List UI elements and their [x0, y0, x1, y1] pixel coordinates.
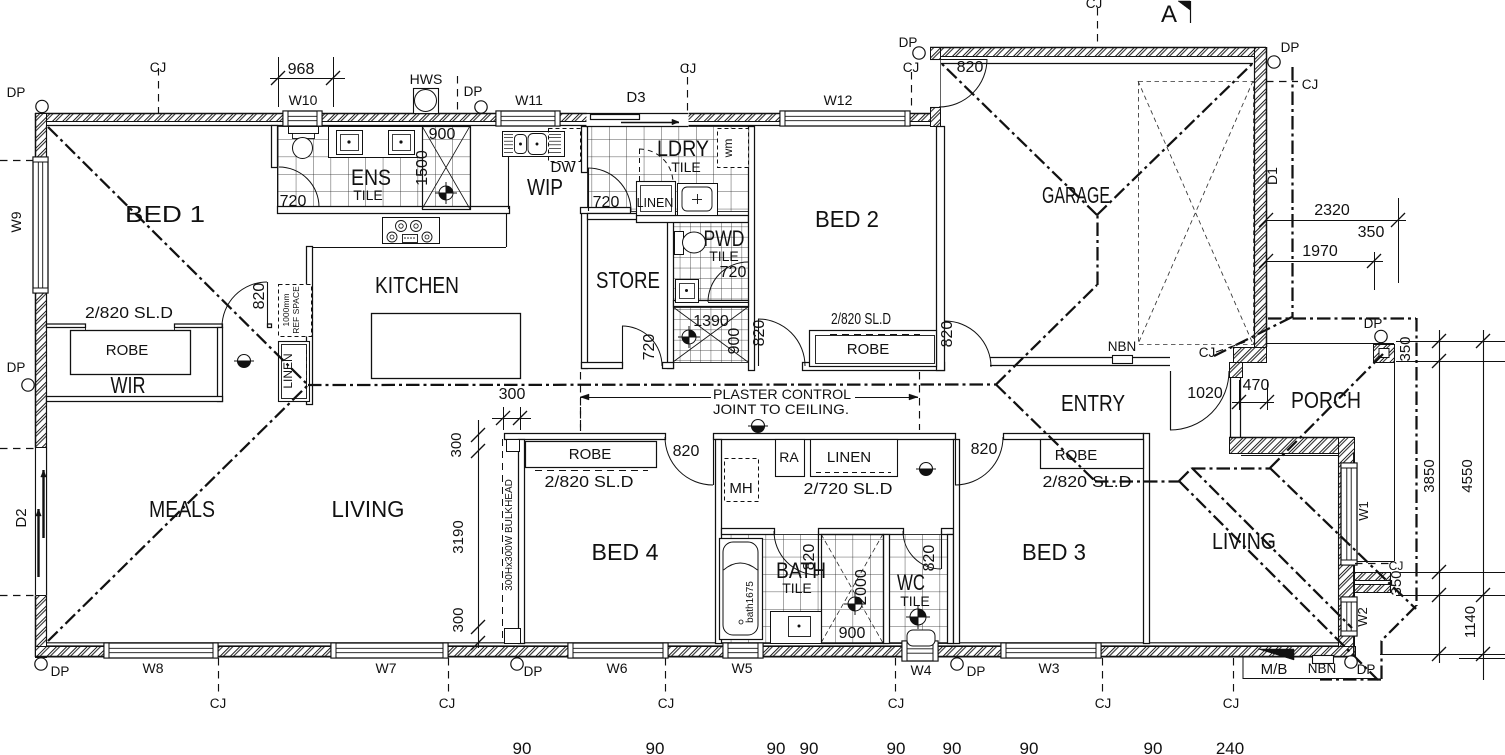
svg-text:300Hx300W BULKHEAD: 300Hx300W BULKHEAD — [504, 479, 515, 591]
svg-text:ROBE: ROBE — [1055, 447, 1098, 464]
svg-text:CJ: CJ — [1095, 696, 1112, 711]
svg-text:WIR: WIR — [111, 372, 146, 398]
svg-text:ROBE: ROBE — [569, 446, 612, 463]
svg-text:720: 720 — [593, 194, 620, 211]
svg-text:LINEN: LINEN — [637, 196, 674, 210]
svg-text:2/820 SL.D: 2/820 SL.D — [831, 311, 891, 328]
svg-text:2/720 SL.D: 2/720 SL.D — [804, 481, 893, 498]
svg-text:90: 90 — [513, 739, 532, 755]
svg-text:350: 350 — [1388, 570, 1405, 595]
svg-text:DP: DP — [464, 84, 483, 99]
svg-text:MEALS: MEALS — [149, 496, 215, 522]
svg-text:470: 470 — [1243, 377, 1270, 394]
svg-text:D2: D2 — [13, 508, 30, 527]
svg-text:DP: DP — [899, 35, 918, 50]
svg-text:W1: W1 — [1356, 501, 1371, 521]
svg-text:ENTRY: ENTRY — [1061, 390, 1125, 416]
svg-text:2/820 SL.D: 2/820 SL.D — [1043, 474, 1132, 491]
svg-text:90: 90 — [1144, 739, 1163, 755]
svg-text:CJ: CJ — [210, 696, 227, 711]
svg-text:M/B: M/B — [1261, 661, 1288, 678]
svg-text:WC: WC — [897, 570, 925, 595]
svg-text:STORE: STORE — [596, 267, 660, 293]
svg-text:90: 90 — [800, 739, 819, 755]
svg-text:BED 2: BED 2 — [815, 206, 879, 232]
svg-text:NBN: NBN — [1308, 661, 1337, 676]
svg-text:CJ: CJ — [1199, 345, 1216, 360]
svg-text:KITCHEN: KITCHEN — [375, 272, 459, 298]
svg-text:HWS: HWS — [410, 71, 443, 87]
svg-text:DP: DP — [967, 664, 986, 679]
svg-text:CJ: CJ — [903, 60, 920, 75]
svg-text:LIVING: LIVING — [1212, 528, 1276, 554]
svg-text:90: 90 — [943, 739, 962, 755]
svg-text:W2: W2 — [1355, 607, 1370, 627]
svg-text:240: 240 — [1216, 739, 1244, 755]
svg-text:820: 820 — [251, 283, 268, 310]
svg-text:2000: 2000 — [853, 569, 870, 605]
svg-text:PLASTER CONTROL: PLASTER CONTROL — [713, 386, 851, 402]
svg-text:NBN: NBN — [1108, 339, 1137, 354]
svg-text:900: 900 — [726, 328, 743, 355]
svg-text:820: 820 — [801, 544, 818, 571]
svg-text:CJ: CJ — [1223, 696, 1240, 711]
svg-text:TILE: TILE — [671, 159, 701, 175]
svg-text:900: 900 — [429, 126, 456, 143]
svg-text:1000mm: 1000mm — [281, 293, 291, 326]
svg-text:DP: DP — [7, 85, 26, 100]
svg-text:820: 820 — [673, 443, 700, 460]
svg-text:BED 1: BED 1 — [125, 201, 205, 227]
svg-text:REF SPACE: REF SPACE — [291, 286, 301, 334]
svg-text:900: 900 — [839, 625, 866, 642]
svg-text:TILE: TILE — [900, 593, 930, 609]
svg-text:2320: 2320 — [1314, 202, 1350, 219]
svg-text:CJ: CJ — [150, 60, 167, 75]
svg-text:DP: DP — [1281, 40, 1300, 55]
svg-text:720: 720 — [720, 264, 747, 281]
svg-text:W4: W4 — [911, 662, 932, 678]
svg-text:W11: W11 — [515, 92, 543, 108]
svg-text:350: 350 — [1397, 336, 1414, 361]
svg-text:W7: W7 — [376, 660, 397, 676]
svg-text:300: 300 — [448, 432, 465, 457]
svg-text:TILE: TILE — [782, 580, 812, 596]
svg-text:DP: DP — [1357, 662, 1376, 677]
svg-text:3190: 3190 — [450, 520, 467, 553]
svg-text:W12: W12 — [824, 92, 853, 108]
svg-text:CJ: CJ — [658, 696, 675, 711]
svg-text:W3: W3 — [1039, 660, 1060, 676]
svg-text:JOINT TO CEILING.: JOINT TO CEILING. — [713, 401, 849, 417]
svg-text:2/820 SL.D: 2/820 SL.D — [85, 305, 173, 322]
svg-text:D1: D1 — [1264, 167, 1280, 185]
svg-text:WIP: WIP — [527, 174, 563, 200]
svg-text:90: 90 — [646, 739, 665, 755]
svg-text:LIVING: LIVING — [332, 496, 405, 522]
svg-text:820: 820 — [971, 441, 998, 458]
svg-text:90: 90 — [887, 739, 906, 755]
svg-text:DP: DP — [7, 360, 26, 375]
svg-text:820: 820 — [751, 320, 768, 347]
svg-text:DP: DP — [51, 664, 70, 679]
svg-text:3850: 3850 — [1421, 459, 1438, 492]
svg-text:CJ: CJ — [1086, 0, 1103, 11]
svg-text:1390: 1390 — [693, 313, 729, 330]
svg-text:LINEN: LINEN — [827, 449, 871, 466]
svg-text:4550: 4550 — [1459, 459, 1476, 492]
svg-text:CJ: CJ — [439, 696, 456, 711]
svg-text:ROBE: ROBE — [106, 342, 149, 359]
svg-text:300: 300 — [499, 386, 526, 403]
svg-text:LINEN: LINEN — [281, 353, 295, 388]
svg-text:W8: W8 — [143, 660, 164, 676]
svg-text:W10: W10 — [289, 92, 318, 108]
svg-text:LDRY: LDRY — [657, 136, 709, 161]
svg-text:W5: W5 — [732, 660, 753, 676]
svg-text:1970: 1970 — [1302, 243, 1338, 260]
svg-text:W6: W6 — [607, 660, 628, 676]
svg-text:1140: 1140 — [1462, 606, 1479, 638]
svg-text:90: 90 — [1020, 739, 1039, 755]
svg-text:90: 90 — [767, 739, 786, 755]
svg-text:2/820 SL.D: 2/820 SL.D — [545, 474, 634, 491]
svg-text:CJ: CJ — [680, 61, 697, 76]
svg-text:820: 820 — [921, 545, 938, 572]
svg-text:D3: D3 — [626, 89, 645, 106]
svg-text:BED 4: BED 4 — [592, 539, 659, 565]
svg-text:RA: RA — [779, 449, 799, 465]
svg-text:720: 720 — [641, 334, 658, 361]
svg-text:TILE: TILE — [709, 248, 739, 264]
svg-text:1500: 1500 — [414, 150, 431, 186]
svg-text:DP: DP — [1364, 316, 1383, 331]
svg-text:720: 720 — [280, 193, 307, 210]
svg-text:wm: wm — [721, 139, 735, 159]
svg-text:DW: DW — [551, 159, 577, 176]
svg-text:DP: DP — [524, 664, 543, 679]
svg-text:CJ: CJ — [888, 696, 905, 711]
svg-text:300: 300 — [450, 607, 467, 632]
svg-text:TILE: TILE — [353, 187, 383, 203]
svg-text:ROBE: ROBE — [847, 341, 890, 358]
svg-text:350: 350 — [1358, 224, 1385, 241]
svg-text:W9: W9 — [8, 211, 24, 232]
svg-text:CJ: CJ — [1302, 77, 1319, 92]
svg-text:GARAGE: GARAGE — [1042, 182, 1110, 208]
svg-text:bath1675: bath1675 — [745, 581, 756, 623]
svg-text:PORCH: PORCH — [1291, 387, 1361, 413]
svg-text:820: 820 — [939, 321, 956, 348]
svg-text:BED 3: BED 3 — [1022, 539, 1086, 565]
svg-text:1020: 1020 — [1187, 385, 1223, 402]
svg-text:A: A — [1161, 1, 1177, 28]
svg-text:968: 968 — [288, 61, 315, 78]
svg-text:820: 820 — [957, 59, 984, 76]
svg-text:MH: MH — [729, 480, 752, 497]
